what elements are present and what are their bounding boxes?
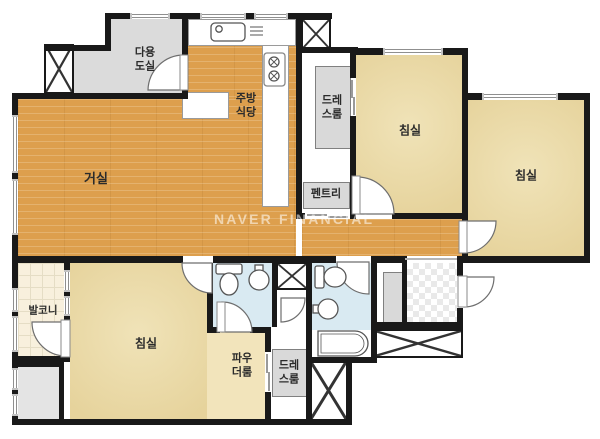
wall xyxy=(462,48,468,221)
kitchen-counter-top xyxy=(188,19,296,46)
window xyxy=(12,316,18,352)
window xyxy=(254,13,288,19)
floor-plan: 거실 주방 식당 다용 도실 드레 스룸 펜트리 침실 침실 침실 발코니 파우… xyxy=(0,0,600,439)
sliding-door-panel xyxy=(351,80,353,98)
entrance-floor xyxy=(407,263,457,322)
wall xyxy=(265,327,271,352)
window xyxy=(12,394,18,416)
bathroom-left-floor xyxy=(213,263,272,327)
window xyxy=(64,296,70,316)
wall xyxy=(584,93,590,262)
wall xyxy=(45,45,111,51)
wall xyxy=(207,327,220,333)
wall xyxy=(306,256,312,425)
sliding-door-panel xyxy=(268,372,270,391)
sliding-door-panel xyxy=(266,354,268,373)
sliding-door-panel xyxy=(353,97,355,115)
utility-room-floor xyxy=(74,51,111,93)
room-label-pantry: 펜트리 xyxy=(311,188,341,202)
window xyxy=(130,13,170,19)
wall xyxy=(462,256,590,263)
room-label-kitchen-dining: 주방 식당 xyxy=(236,92,256,120)
shaft-x-icon xyxy=(301,18,331,50)
shaft-x-icon xyxy=(309,360,348,421)
room-label-powder: 파우 더룸 xyxy=(232,352,252,380)
room-label-bedroom-top: 침실 xyxy=(399,124,421,139)
room-label-utility: 다용 도실 xyxy=(135,46,155,74)
shaft-x-icon xyxy=(373,329,463,358)
wall xyxy=(12,93,188,99)
wall xyxy=(296,13,302,219)
wall xyxy=(182,90,188,99)
wall xyxy=(272,263,277,327)
window xyxy=(12,179,18,235)
wall xyxy=(182,13,188,55)
wall xyxy=(12,356,70,362)
wall xyxy=(346,357,352,425)
wall xyxy=(296,47,358,53)
watermark: NAVER FINANCIAL xyxy=(214,211,374,227)
window xyxy=(482,93,558,100)
wall xyxy=(392,213,466,219)
wall xyxy=(371,322,463,329)
wall xyxy=(402,256,407,330)
kitchen-counter-right xyxy=(262,45,289,207)
wall xyxy=(306,357,377,363)
wall xyxy=(371,256,377,363)
room-label-living: 거실 xyxy=(84,171,108,187)
storage-room xyxy=(18,362,64,419)
room-label-bedroom-bottom: 침실 xyxy=(135,337,157,352)
wall xyxy=(457,256,463,276)
bathtub-icon xyxy=(318,331,368,356)
window xyxy=(64,270,70,292)
shaft-x-icon xyxy=(276,262,308,290)
wall xyxy=(207,263,213,332)
window xyxy=(200,13,246,19)
window xyxy=(12,115,18,173)
shoe-cabinet xyxy=(383,272,404,324)
window xyxy=(383,48,443,55)
room-label-balcony: 발코니 xyxy=(29,304,58,317)
kitchen-island xyxy=(182,92,229,119)
living-room-floor xyxy=(18,99,296,256)
room-label-bedroom-right: 침실 xyxy=(515,169,537,184)
wall xyxy=(12,419,352,425)
wall xyxy=(213,256,336,263)
wall xyxy=(350,116,356,219)
wall xyxy=(265,392,271,425)
window xyxy=(12,368,18,390)
window xyxy=(12,288,18,312)
room-label-dressroom-top: 드레 스룸 xyxy=(322,94,342,122)
bathroom-right-floor xyxy=(312,263,371,330)
wall xyxy=(12,256,183,263)
room-label-dressroom-bottom: 드레 스룸 xyxy=(279,359,299,387)
shaft-x-icon xyxy=(44,44,74,94)
entrance-threshold xyxy=(405,258,457,260)
